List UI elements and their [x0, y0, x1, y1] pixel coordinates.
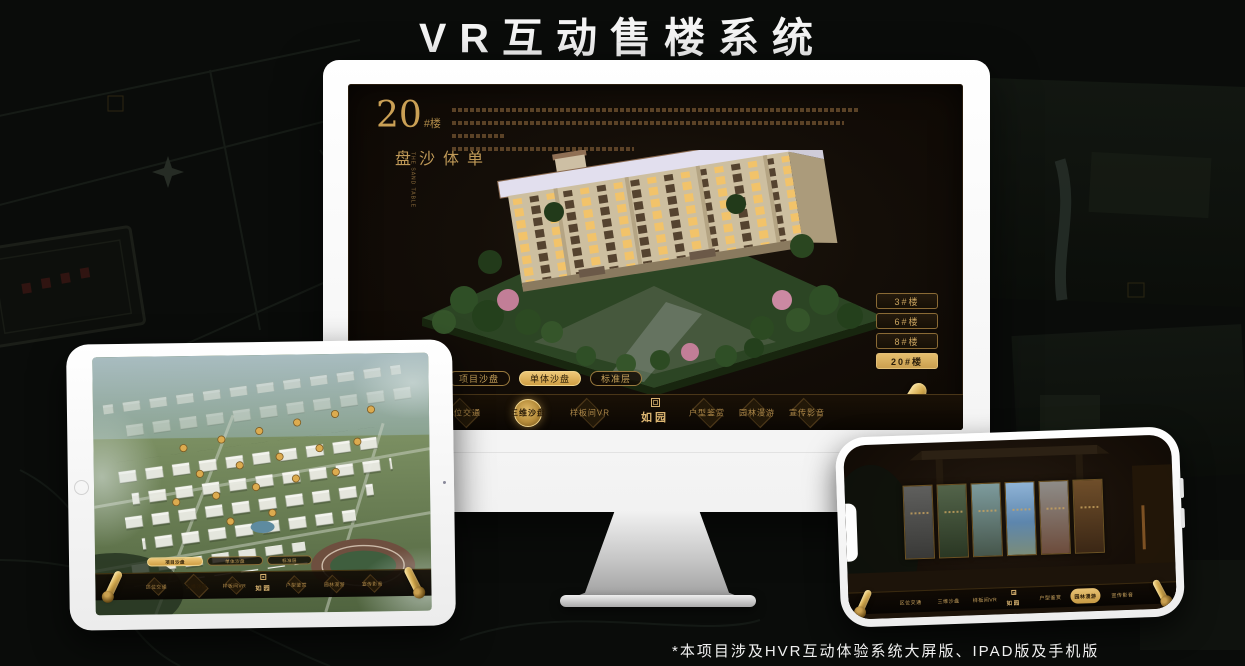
sandtable-subtabs: 项目沙盘 单体沙盘 标准层 [448, 371, 642, 386]
paragraph-line [452, 108, 860, 112]
brand-logo: 如园 [996, 587, 1031, 609]
building-headline: 20#楼 单体沙盘 THE SAND TABLE [376, 98, 441, 134]
scroll-ornament-icon [856, 589, 873, 616]
nav-item-3d-sandtable[interactable]: 三维沙盘 [500, 398, 556, 427]
gallery-panel[interactable] [1038, 480, 1071, 555]
ipad-nav-item-floorplan[interactable]: 户型鉴赏 [279, 573, 313, 595]
subtab-standard-floor[interactable]: 标准层 [590, 371, 642, 386]
subtab-single-sandtable[interactable]: 单体沙盘 [519, 371, 581, 386]
brand-logo: 如园 [245, 573, 281, 598]
ipad-nav-item-location-traffic[interactable]: 区位交通 [139, 575, 173, 597]
nav-item-floorplan[interactable]: 户型鉴赏 [679, 398, 735, 427]
compass-star [152, 156, 184, 188]
home-button[interactable] [74, 480, 89, 495]
gallery-panel[interactable] [936, 483, 969, 558]
ipad-nav-item-promo-video[interactable]: 宣传影音 [355, 572, 389, 594]
gallery-panel[interactable] [1004, 481, 1037, 556]
panorama-gallery [902, 479, 1104, 560]
gallery-panel[interactable] [970, 482, 1003, 557]
phone-screen: 区位交通 三维沙盘 样板间VR 如园 户型鉴赏 园林漫游 宣传影音 [843, 434, 1177, 619]
paragraph-line [452, 134, 504, 138]
nav-item-garden-roam[interactable]: 园林漫游 [729, 398, 785, 427]
scroll-ornament-icon [103, 570, 123, 601]
phone-mockup: 区位交通 三维沙盘 样板间VR 如园 户型鉴赏 园林漫游 宣传影音 [835, 426, 1185, 628]
monitor-stand-base [560, 595, 756, 607]
floor-button-3[interactable]: 3#楼 [876, 293, 938, 309]
phone-nav-item-floorplan[interactable]: 户型鉴赏 [1034, 589, 1067, 605]
scroll-ornament-icon [403, 566, 424, 596]
nav-item-model-room-vr[interactable]: 样板间VR [562, 398, 618, 427]
brand-logo: 如园 [625, 397, 685, 428]
page-title: VR互动售楼系统 [0, 4, 1245, 64]
nav-item-promo-video[interactable]: 宣传影音 [779, 398, 835, 427]
power-button[interactable] [1180, 508, 1185, 528]
floor-selector: 3#楼 6#楼 8#楼 20#楼 [876, 293, 938, 369]
seal-icon [260, 574, 266, 580]
award-plaque [0, 226, 145, 347]
ipad-screen: 项目沙盘 单体沙盘 标准层 区位交通 三维沙盘 样板间VR [92, 353, 432, 616]
floor-button-6[interactable]: 6#楼 [876, 313, 938, 329]
scroll-ornament-icon [1152, 579, 1170, 605]
ipad-nav-item-garden-roam[interactable]: 园林漫游 [317, 573, 351, 595]
ipad-subtab-project-sandtable[interactable]: 项目沙盘 [147, 557, 203, 567]
camera-dot-icon [443, 481, 446, 484]
map-logo-mark [108, 96, 123, 111]
ipad-mockup: 项目沙盘 单体沙盘 标准层 区位交通 三维沙盘 样板间VR [66, 339, 456, 630]
seal-icon [651, 398, 660, 407]
paragraph-line [452, 121, 844, 125]
subtab-project-sandtable[interactable]: 项目沙盘 [448, 371, 510, 386]
footnote-text: *本项目涉及HVR互动体验系统大屏版、IPAD版及手机版 [672, 640, 1099, 661]
ipad-subtab-single-sandtable[interactable]: 单体沙盘 [207, 556, 263, 566]
gallery-panel[interactable] [1072, 479, 1105, 554]
phone-notch [845, 503, 858, 561]
floor-button-8[interactable]: 8#楼 [876, 333, 938, 349]
phone-nav-item-location-traffic[interactable]: 区位交通 [894, 594, 927, 610]
ipad-subtab-standard-floor[interactable]: 标准层 [267, 555, 312, 565]
ipad-bottom-nav: 区位交通 三维沙盘 样板间VR 如园 户型鉴赏 园林漫游 [95, 569, 431, 601]
ipad-nav-item-3d-sandtable[interactable]: 三维沙盘 [179, 575, 213, 597]
phone-nav-item-promo-video[interactable]: 宣传影音 [1106, 587, 1139, 603]
building-number-suffix: #楼 [424, 118, 441, 130]
gallery-panel[interactable] [902, 485, 935, 560]
building-number: 20 [376, 95, 422, 136]
building-3d-render [404, 150, 904, 394]
phone-nav-item-3d-sandtable[interactable]: 三维沙盘 [932, 593, 965, 609]
volume-button[interactable] [1179, 478, 1184, 498]
floor-button-20[interactable]: 20#楼 [876, 353, 938, 369]
page-canvas: VR互动售楼系统 20#楼 单体沙盘 THE SAND TABLE [0, 0, 1245, 666]
seal-icon [1011, 590, 1016, 595]
phone-nav-item-garden-roam[interactable]: 园林漫游 [1070, 588, 1101, 604]
